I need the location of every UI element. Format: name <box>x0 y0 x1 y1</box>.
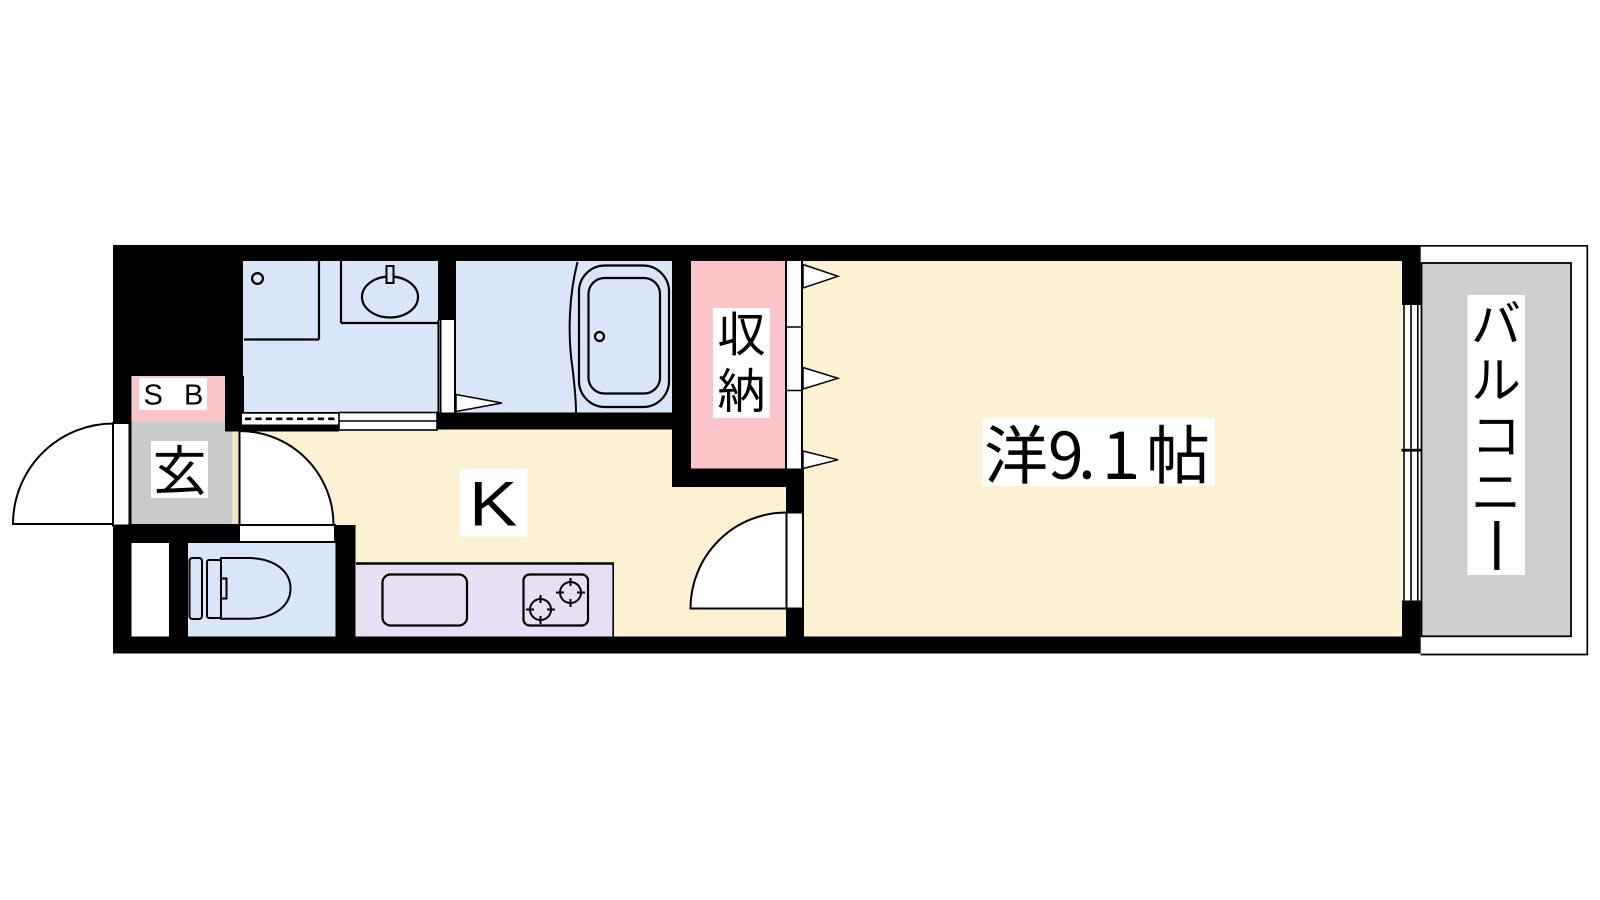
svg-text:B: B <box>184 380 203 412</box>
svg-text:S: S <box>144 380 163 412</box>
svg-text:K: K <box>469 470 517 540</box>
